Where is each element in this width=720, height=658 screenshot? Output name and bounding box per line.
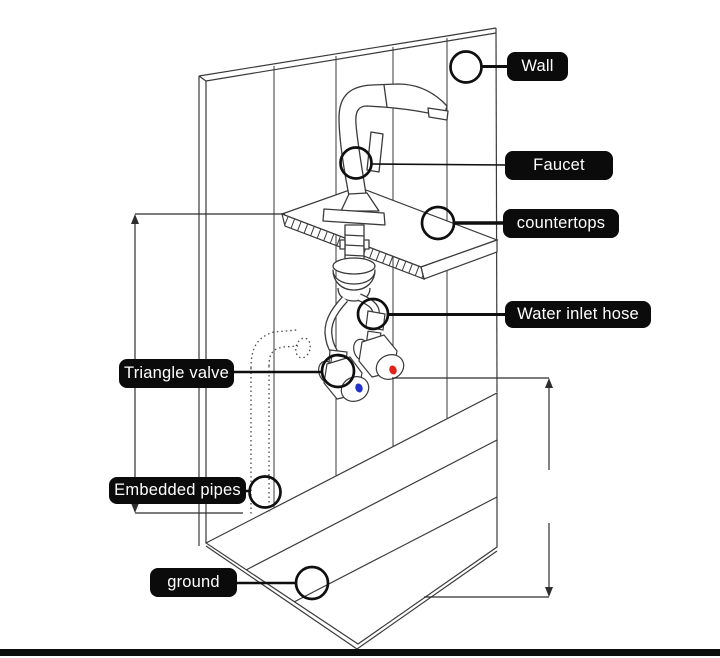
arrowhead-down xyxy=(545,587,553,597)
embedded-pipes-drawing xyxy=(251,330,312,514)
arrowhead-up xyxy=(131,214,139,224)
floor xyxy=(206,393,497,649)
faucet-handle xyxy=(367,132,383,172)
arrowhead-up xyxy=(545,378,553,388)
faucet-shank xyxy=(345,225,364,263)
countertop-slab xyxy=(282,187,497,279)
label-wall: Wall xyxy=(507,52,568,81)
installation-line-drawing xyxy=(0,0,720,658)
label-embedded-pipes: Embedded pipes xyxy=(109,477,246,504)
label-ground: ground xyxy=(150,568,237,597)
callout-circle-embedded-pipes xyxy=(250,477,281,508)
label-water-inlet-hose: Water inlet hose xyxy=(505,301,651,328)
label-faucet: Faucet xyxy=(505,151,613,180)
faucet-mounting-nut xyxy=(333,258,375,274)
label-countertops: countertops xyxy=(503,209,619,238)
arrowhead-down xyxy=(131,503,139,513)
bottom-border-bar xyxy=(0,649,720,656)
label-triangle-valve: Triangle valve xyxy=(119,359,234,388)
callout-circle-wall xyxy=(451,52,482,83)
diagram-canvas: Wall Faucet countertops Water inlet hose… xyxy=(0,0,720,658)
